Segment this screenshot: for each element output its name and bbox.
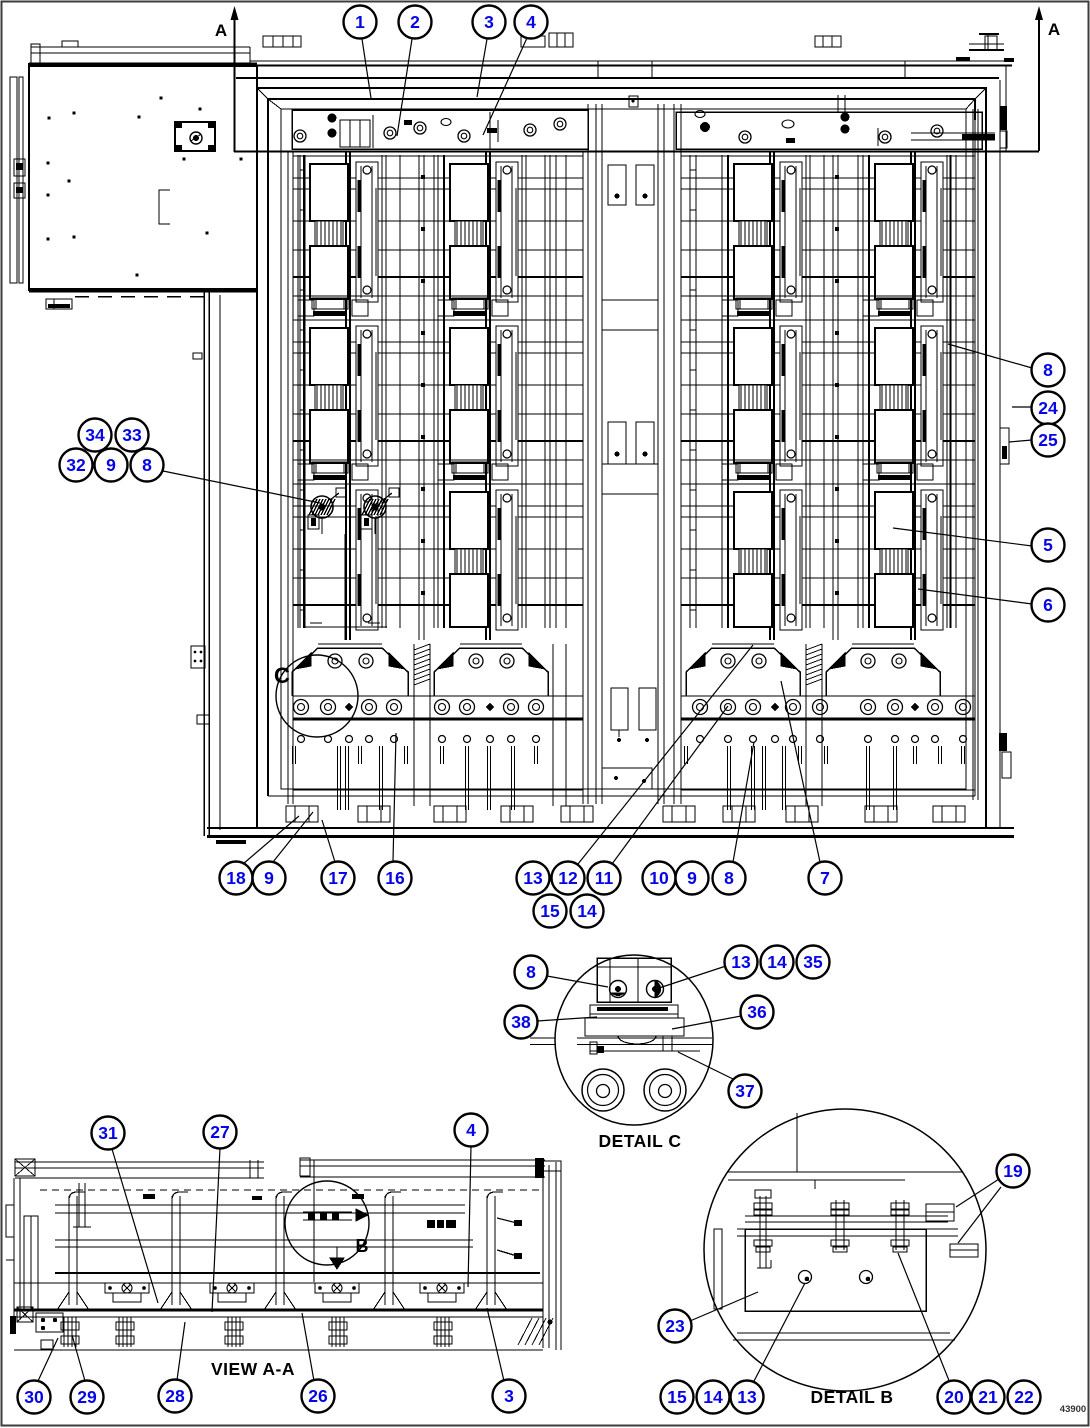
svg-text:9: 9 — [106, 455, 116, 475]
svg-text:12: 12 — [558, 868, 578, 888]
svg-text:13: 13 — [737, 1387, 757, 1407]
svg-text:17: 17 — [328, 868, 347, 888]
svg-text:24: 24 — [1038, 398, 1058, 418]
svg-text:9: 9 — [264, 868, 274, 888]
svg-text:4: 4 — [466, 1120, 476, 1140]
svg-text:43900: 43900 — [1060, 1404, 1086, 1415]
svg-text:20: 20 — [944, 1387, 964, 1407]
svg-text:3: 3 — [484, 12, 494, 32]
svg-text:10: 10 — [649, 868, 669, 888]
svg-text:11: 11 — [595, 868, 614, 888]
svg-text:35: 35 — [803, 952, 823, 972]
svg-text:30: 30 — [24, 1387, 44, 1407]
svg-text:B: B — [356, 1236, 369, 1256]
svg-text:1: 1 — [355, 12, 365, 32]
svg-text:14: 14 — [767, 952, 787, 972]
svg-text:33: 33 — [122, 425, 142, 445]
svg-text:C: C — [274, 663, 290, 688]
svg-text:5: 5 — [1043, 535, 1053, 555]
svg-text:13: 13 — [731, 952, 751, 972]
svg-text:34: 34 — [85, 425, 105, 445]
svg-text:A: A — [215, 21, 227, 40]
svg-text:29: 29 — [77, 1387, 97, 1407]
svg-text:23: 23 — [665, 1316, 685, 1336]
svg-text:4: 4 — [526, 12, 536, 32]
svg-text:37: 37 — [735, 1081, 754, 1101]
svg-text:A: A — [1048, 20, 1060, 39]
svg-text:14: 14 — [703, 1387, 723, 1407]
svg-text:27: 27 — [210, 1122, 229, 1142]
svg-text:38: 38 — [511, 1012, 531, 1032]
svg-text:26: 26 — [308, 1386, 328, 1406]
svg-text:18: 18 — [226, 868, 246, 888]
svg-text:2: 2 — [410, 12, 420, 32]
svg-text:8: 8 — [142, 455, 152, 475]
svg-text:7: 7 — [820, 868, 830, 888]
svg-text:9: 9 — [687, 868, 697, 888]
svg-text:15: 15 — [540, 901, 560, 921]
svg-text:8: 8 — [724, 868, 734, 888]
svg-text:31: 31 — [98, 1123, 118, 1143]
svg-text:15: 15 — [667, 1387, 687, 1407]
svg-text:DETAIL C: DETAIL C — [598, 1131, 681, 1151]
svg-text:14: 14 — [577, 901, 597, 921]
svg-text:8: 8 — [526, 962, 536, 982]
svg-text:32: 32 — [66, 455, 86, 475]
svg-text:8: 8 — [1043, 360, 1053, 380]
svg-text:6: 6 — [1043, 595, 1053, 615]
svg-text:3: 3 — [504, 1386, 514, 1406]
svg-text:16: 16 — [385, 868, 405, 888]
svg-text:28: 28 — [165, 1386, 185, 1406]
svg-text:25: 25 — [1038, 430, 1058, 450]
svg-text:19: 19 — [1003, 1161, 1023, 1181]
svg-text:13: 13 — [523, 868, 543, 888]
svg-text:VIEW A-A: VIEW A-A — [211, 1359, 295, 1379]
svg-text:36: 36 — [747, 1002, 767, 1022]
svg-text:22: 22 — [1014, 1387, 1034, 1407]
svg-text:21: 21 — [978, 1387, 998, 1407]
svg-text:DETAIL B: DETAIL B — [810, 1387, 893, 1407]
